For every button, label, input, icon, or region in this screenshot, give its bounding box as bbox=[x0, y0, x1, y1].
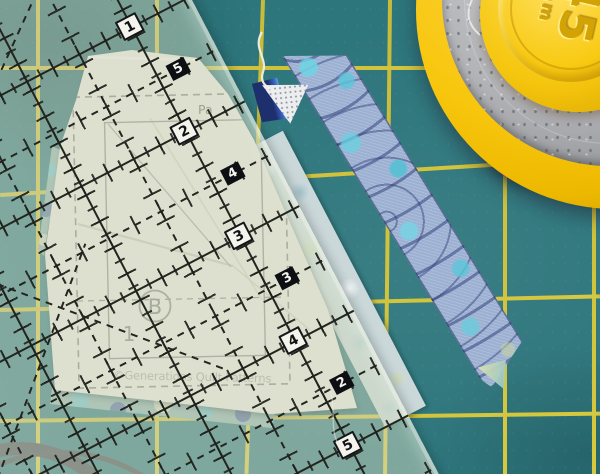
thread-layer bbox=[0, 0, 600, 474]
quilting-workspace-photo: B 1 ©Generations Quilt Patterns Pa bbox=[0, 0, 600, 474]
thread bbox=[469, 0, 480, 35]
thread bbox=[259, 32, 278, 92]
thread bbox=[330, 390, 341, 448]
